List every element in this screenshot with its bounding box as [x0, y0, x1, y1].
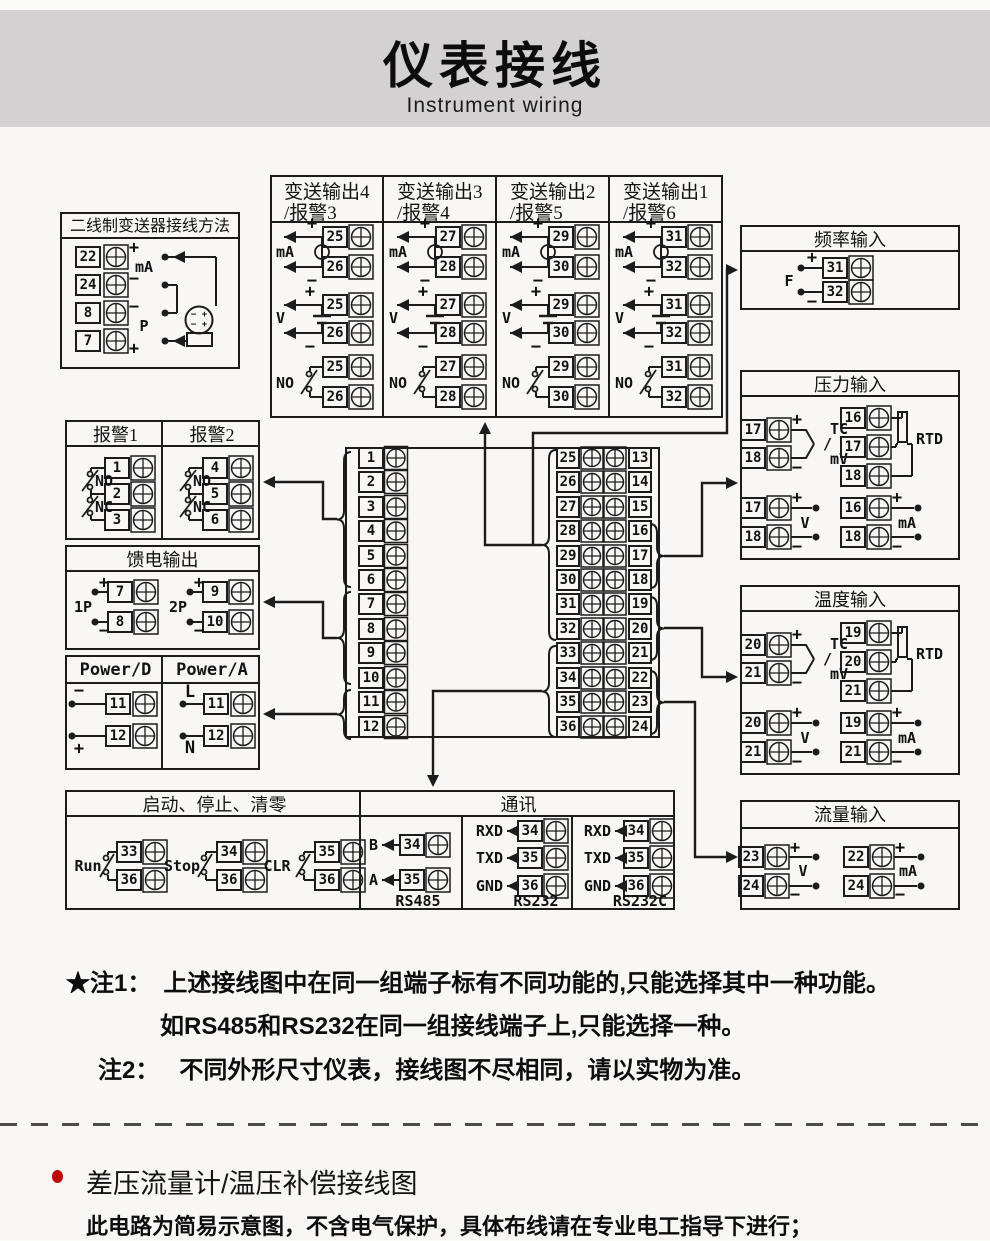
- diagram-label: +: [792, 410, 802, 430]
- terminal-number-34: 34: [517, 820, 543, 842]
- col-title-line1: 变送输出1: [623, 182, 709, 203]
- diagram-label: − +: [191, 320, 207, 330]
- terminal-number-36: 36: [216, 869, 242, 891]
- terminal-number-11: 11: [203, 693, 229, 715]
- arrowhead-icon: [726, 264, 738, 276]
- diagram-label: V: [502, 309, 511, 327]
- switch-label: Stop: [164, 857, 200, 875]
- terminal-number-36: 36: [314, 869, 340, 891]
- terminal-number-30: 30: [548, 256, 574, 278]
- diagram-label: −: [892, 752, 902, 772]
- terminal-number-20: 20: [840, 651, 866, 673]
- arrowhead-icon: [479, 422, 491, 434]
- arrowhead-icon: [427, 775, 439, 787]
- diagram-label: P: [139, 317, 148, 335]
- section2-body: 此电路为简易示意图，不含电气保护，具体布线请在专业电工指导下进行；: [86, 1209, 812, 1241]
- signal-label: GND: [476, 877, 503, 895]
- terminal-number-31: 31: [661, 226, 687, 248]
- terminal-number-31: 31: [661, 356, 687, 378]
- col-title-line2: /报警4: [397, 203, 483, 224]
- terminal-number-2: 2: [358, 471, 384, 493]
- diagram-label: mA: [615, 243, 633, 261]
- terminal-number-18: 18: [840, 465, 866, 487]
- terminal-number-32: 32: [661, 256, 687, 278]
- terminal-number-36: 36: [116, 869, 142, 891]
- terminal-number-8: 8: [107, 611, 133, 633]
- terminal-number-22: 22: [75, 246, 101, 268]
- box-title: 压力输入: [742, 372, 958, 398]
- arrowhead-icon: [726, 671, 738, 683]
- diagram-label: −: [807, 292, 817, 312]
- terminal-number-29: 29: [548, 294, 574, 316]
- terminal-number-26: 26: [322, 322, 348, 344]
- arrowhead-icon: [726, 477, 738, 489]
- diagram-label: +: [531, 282, 541, 302]
- terminal-number-21: 21: [840, 680, 866, 702]
- terminal-number-16: 16: [628, 520, 652, 542]
- terminal-number-17: 17: [740, 419, 766, 441]
- terminal-number-11: 11: [105, 693, 131, 715]
- diagram-label: NO: [389, 374, 407, 392]
- diagram-label: +: [790, 838, 800, 858]
- terminal-number-25: 25: [556, 447, 580, 469]
- box-title: 二线制变送器接线方法: [62, 214, 238, 240]
- arrowhead-icon: [263, 708, 275, 720]
- diagram-label: −: [792, 752, 802, 772]
- diagram-label: NO: [502, 374, 520, 392]
- diagram-label: +: [99, 573, 109, 593]
- section2-heading: 差压流量计/温压补偿接线图: [86, 1162, 418, 1201]
- box-title: 馈电输出: [67, 547, 258, 573]
- terminal-number-13: 13: [628, 447, 652, 469]
- terminal-number-25: 25: [322, 356, 348, 378]
- diagram-label: +: [892, 703, 902, 723]
- arrowhead-icon: [263, 476, 275, 488]
- diagram-label: +: [420, 214, 430, 234]
- box-title-alarm1: 报警1: [67, 422, 164, 448]
- terminal-number-30: 30: [548, 322, 574, 344]
- note-2-label: 注2：: [98, 1057, 159, 1084]
- terminal-number-25: 25: [322, 226, 348, 248]
- terminal-number-28: 28: [435, 386, 461, 408]
- terminal-number-34: 34: [399, 834, 425, 856]
- wire: [266, 482, 337, 519]
- terminal-number-10: 10: [202, 611, 228, 633]
- wire: [664, 628, 732, 677]
- box-title: 温度输入: [742, 587, 958, 613]
- box-title-alarm2: 报警2: [164, 422, 260, 448]
- terminal-number-14: 14: [628, 471, 652, 493]
- signal-label: RXD: [584, 822, 611, 840]
- terminal-number-32: 32: [556, 618, 580, 640]
- terminal-number-35: 35: [556, 691, 580, 713]
- diagram-label: −: [129, 297, 139, 317]
- terminal-number-22: 22: [843, 846, 869, 868]
- comm-type-label: RS232: [513, 892, 558, 910]
- diagram-label: NO: [95, 472, 113, 490]
- signal-label: TXD: [476, 849, 503, 867]
- terminal-number-29: 29: [556, 545, 580, 567]
- terminal-number-20: 20: [740, 634, 766, 656]
- box-title-power-a: Power/A: [164, 657, 260, 683]
- diagram-label: +: [307, 214, 317, 234]
- box-terminal-strip: [345, 447, 660, 738]
- terminal-number-35: 35: [623, 847, 649, 869]
- box-power: Power/D Power/A: [65, 655, 260, 770]
- terminal-number-17: 17: [740, 497, 766, 519]
- diagram-label: mA: [899, 862, 917, 880]
- diagram-label: V: [800, 514, 809, 532]
- terminal-number-36: 36: [556, 716, 580, 738]
- terminal-number-27: 27: [556, 496, 580, 518]
- terminal-number-21: 21: [740, 741, 766, 763]
- terminal-number-15: 15: [628, 496, 652, 518]
- terminal-number-9: 9: [202, 581, 228, 603]
- terminal-number-16: 16: [840, 407, 866, 429]
- terminal-number-4: 4: [358, 520, 384, 542]
- terminal-number-24: 24: [628, 716, 652, 738]
- box-title-comm: 通讯: [362, 792, 675, 818]
- diagram-label: +: [129, 339, 139, 359]
- diagram-label: mA: [389, 243, 407, 261]
- terminal-number-16: 16: [840, 497, 866, 519]
- terminal-number-21: 21: [628, 642, 652, 664]
- terminal-number-28: 28: [435, 322, 461, 344]
- terminal-number-19: 19: [840, 622, 866, 644]
- diagram-label: +: [646, 214, 656, 234]
- diagram-label: +: [892, 488, 902, 508]
- signal-label: RXD: [476, 822, 503, 840]
- terminal-number-21: 21: [740, 662, 766, 684]
- diagram-label: mA: [502, 243, 520, 261]
- col-title-line1: 变送输出4: [284, 182, 370, 203]
- col-title-1: 变送输出4 /报警3: [284, 182, 370, 224]
- comm-type-label: RS232C: [613, 892, 667, 910]
- terminal-number-12: 12: [203, 725, 229, 747]
- terminal-number-24: 24: [738, 875, 764, 897]
- terminal-number-27: 27: [435, 294, 461, 316]
- diagram-label: −: [99, 621, 109, 641]
- box-title: 流量输入: [742, 802, 958, 828]
- diagram-label: N: [185, 738, 195, 758]
- terminal-number-31: 31: [661, 294, 687, 316]
- terminal-number-18: 18: [628, 569, 652, 591]
- page: 仪表接线 Instrument wiring 二线制变送器接线方法 变送输出4 …: [0, 0, 990, 1240]
- diagram-label: +: [792, 625, 802, 645]
- terminal-number-20: 20: [628, 618, 652, 640]
- diagram-label: mA: [898, 729, 916, 747]
- terminal-number-35: 35: [314, 841, 340, 863]
- diagram-label: −: [792, 537, 802, 557]
- terminal-number-8: 8: [358, 618, 384, 640]
- diagram-label: −: [194, 621, 204, 641]
- diagram-label: −: [892, 537, 902, 557]
- terminal-number-33: 33: [556, 642, 580, 664]
- terminal-number-8: 8: [75, 302, 101, 324]
- col-title-2: 变送输出3 /报警4: [397, 182, 483, 224]
- diagram-label: +: [418, 282, 428, 302]
- diagram-label: −: [305, 337, 315, 357]
- diagram-label: +: [807, 248, 817, 268]
- col-title-line1: 变送输出3: [397, 182, 483, 203]
- diagram-label: −: [895, 885, 905, 905]
- box-frequency-input: 频率输入: [740, 225, 960, 310]
- diagram-label: V: [798, 862, 807, 880]
- bullet-icon: [52, 1170, 63, 1183]
- terminal-number-11: 11: [358, 691, 384, 713]
- col-title-4: 变送输出1 /报警6: [623, 182, 709, 224]
- diagram-label: mA: [898, 514, 916, 532]
- diagram-label: V: [800, 729, 809, 747]
- terminal-number-10: 10: [358, 667, 384, 689]
- terminal-number-18: 18: [740, 447, 766, 469]
- diagram-label: −: [531, 337, 541, 357]
- terminal-number-1: 1: [358, 447, 384, 469]
- diagram-label: −: [792, 673, 802, 693]
- terminal-number-18: 18: [840, 526, 866, 548]
- diagram-label: +: [792, 703, 802, 723]
- diagram-label: +: [74, 739, 84, 759]
- terminal-number-25: 25: [322, 294, 348, 316]
- terminal-number-29: 29: [548, 226, 574, 248]
- terminal-number-17: 17: [628, 545, 652, 567]
- diagram-label: −: [74, 681, 84, 701]
- diagram-label: 2P: [169, 598, 187, 616]
- diagram-label: mA: [276, 243, 294, 261]
- terminal-number-7: 7: [75, 330, 101, 352]
- terminal-number-31: 31: [822, 257, 848, 279]
- diagram-label: V: [389, 309, 398, 327]
- diagram-label: RTD: [916, 645, 943, 663]
- diagram-label: RTD: [916, 430, 943, 448]
- diagram-label: V: [276, 309, 285, 327]
- arrowhead-icon: [726, 851, 738, 863]
- col-title-3: 变送输出2 /报警5: [510, 182, 596, 224]
- col-title-line2: /报警3: [284, 203, 370, 224]
- diagram-label: +: [305, 282, 315, 302]
- note-2-text: 不同外形尺寸仪表，接线图不尽相同，请以实物为准。: [179, 1057, 755, 1084]
- terminal-number-12: 12: [358, 716, 384, 738]
- terminal-number-35: 35: [399, 869, 425, 891]
- terminal-number-24: 24: [843, 875, 869, 897]
- terminal-number-35: 35: [517, 847, 543, 869]
- wire: [266, 602, 337, 638]
- diagram-label: −: [790, 885, 800, 905]
- terminal-number-19: 19: [628, 593, 652, 615]
- terminal-number-30: 30: [556, 569, 580, 591]
- wire: [664, 483, 732, 556]
- terminal-number-20: 20: [740, 712, 766, 734]
- note-1-line-1: ★注1：上述接线图中在同一组端子标有不同功能的,只能选择其中一种功能。: [66, 963, 890, 998]
- diagram-label: NO: [615, 374, 633, 392]
- diagram-label: +: [895, 838, 905, 858]
- diagram-label: − +: [191, 310, 207, 320]
- switch-label: CLR: [263, 857, 290, 875]
- terminal-number-31: 31: [556, 593, 580, 615]
- terminal-number-32: 32: [822, 281, 848, 303]
- terminal-number-27: 27: [435, 226, 461, 248]
- diagram-label: NC: [193, 498, 211, 516]
- note-2: 注2：不同外形尺寸仪表，接线图不尽相同，请以实物为准。: [98, 1050, 755, 1085]
- terminal-number-29: 29: [548, 356, 574, 378]
- terminal-number-23: 23: [628, 691, 652, 713]
- diagram-label: NC: [95, 498, 113, 516]
- terminal-number-17: 17: [840, 436, 866, 458]
- diagram-label: −: [792, 458, 802, 478]
- box-title: 频率输入: [742, 227, 958, 253]
- terminal-number-21: 21: [840, 741, 866, 763]
- diagram-label: +: [792, 488, 802, 508]
- terminal-number-18: 18: [740, 526, 766, 548]
- terminal-number-5: 5: [358, 545, 384, 567]
- diagram-label: V: [615, 309, 624, 327]
- terminal-number-3: 3: [358, 496, 384, 518]
- terminal-number-28: 28: [435, 256, 461, 278]
- diagram-label: +: [129, 238, 139, 258]
- diagram-label: −: [418, 337, 428, 357]
- box-feed-output: 馈电输出: [65, 545, 260, 650]
- diagram-label: F: [784, 272, 793, 290]
- terminal-number-32: 32: [661, 386, 687, 408]
- comm-type-label: RS485: [395, 892, 440, 910]
- terminal-number-34: 34: [216, 841, 242, 863]
- terminal-number-6: 6: [358, 569, 384, 591]
- col-title-line2: /报警5: [510, 203, 596, 224]
- note-1-label: ★注1：: [66, 970, 151, 997]
- terminal-number-34: 34: [623, 820, 649, 842]
- terminal-number-23: 23: [738, 846, 764, 868]
- signal-label: A: [369, 871, 378, 889]
- terminal-number-7: 7: [358, 593, 384, 615]
- switch-label: Run: [74, 857, 101, 875]
- diagram-label: 1P: [74, 598, 92, 616]
- terminal-number-34: 34: [556, 667, 580, 689]
- diagram-label: L: [185, 682, 195, 702]
- col-title-line1: 变送输出2: [510, 182, 596, 203]
- col-title-line2: /报警6: [623, 203, 709, 224]
- signal-label: TXD: [584, 849, 611, 867]
- diagram-label: NO: [193, 472, 211, 490]
- terminal-number-28: 28: [556, 520, 580, 542]
- signal-label: B: [369, 836, 378, 854]
- diagram-label: NO: [276, 374, 294, 392]
- terminal-number-26: 26: [556, 471, 580, 493]
- terminal-number-19: 19: [840, 712, 866, 734]
- note-1-text: 上述接线图中在同一组端子标有不同功能的,只能选择其中一种功能。: [163, 970, 890, 997]
- terminal-number-26: 26: [322, 256, 348, 278]
- terminal-number-12: 12: [105, 725, 131, 747]
- arrowhead-icon: [263, 596, 275, 608]
- terminal-number-30: 30: [548, 386, 574, 408]
- section-divider: [0, 1123, 990, 1126]
- terminal-number-26: 26: [322, 386, 348, 408]
- terminal-number-24: 24: [75, 274, 101, 296]
- box-title-power-d: Power/D: [67, 657, 164, 683]
- terminal-number-27: 27: [435, 356, 461, 378]
- diagram-label: +: [644, 282, 654, 302]
- box-title-runstop: 启动、停止、清零: [67, 792, 362, 818]
- terminal-number-22: 22: [628, 667, 652, 689]
- terminal-number-33: 33: [116, 841, 142, 863]
- diagram-label: +: [533, 214, 543, 234]
- diagram-label: +: [194, 573, 204, 593]
- diagram-label: −: [644, 337, 654, 357]
- terminal-number-7: 7: [107, 581, 133, 603]
- terminal-number-9: 9: [358, 642, 384, 664]
- diagram-label: −: [129, 269, 139, 289]
- terminal-number-32: 32: [661, 322, 687, 344]
- signal-label: GND: [584, 877, 611, 895]
- note-1-line-2: 如RS485和RS232在同一组接线端子上,只能选择一种。: [160, 1006, 745, 1041]
